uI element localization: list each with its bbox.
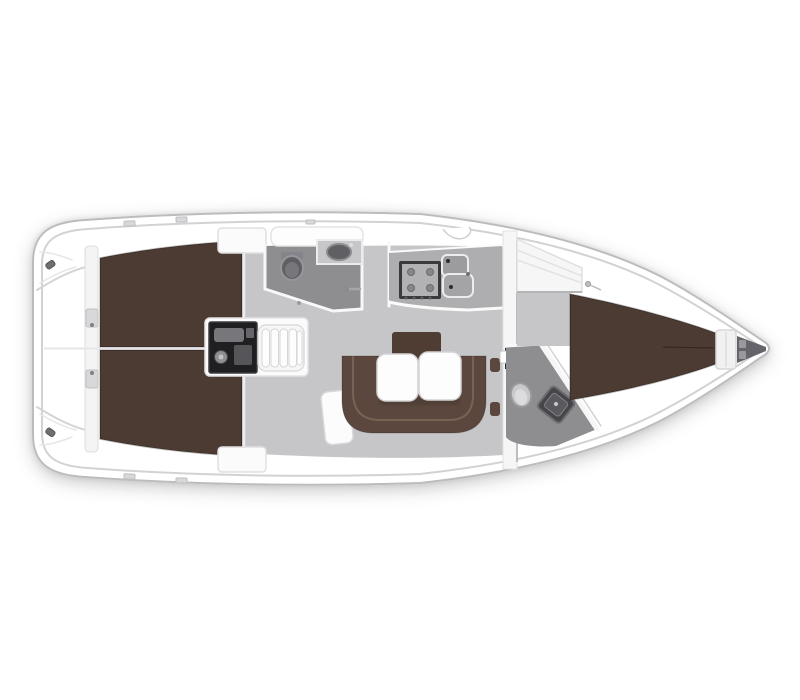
sink-upper-drain [446,259,450,263]
aft-head-faucet [349,243,353,247]
deck-plan-svg [0,0,800,700]
burner-4 [427,285,434,292]
anchor-fitting-bottom [739,351,746,359]
aft-locker-port [218,228,266,253]
engine-pulley-hub [219,355,224,360]
step-5 [297,331,302,365]
step-1 [262,329,270,367]
stove-panel [402,264,438,296]
aft-locker-starboard [218,447,266,472]
stove-knob-1 [405,297,408,300]
settee-nub-bottom [490,402,500,416]
aft-head-wall-bottom [333,309,362,311]
stove-knob-4 [429,297,432,300]
stove-knob-2 [413,297,416,300]
companionway [258,325,304,371]
aft-head-washbasin [327,244,351,260]
step-3 [280,329,288,367]
deck-fitting-4 [176,478,187,483]
step-4 [289,329,297,367]
stove-knob-3 [421,297,424,300]
galley-faucet [466,272,470,276]
engine-block [214,328,244,342]
deck-fitting-5 [306,220,315,224]
burner-1 [408,269,415,276]
steering-pin-top [90,323,94,327]
table-leaf-right [419,352,461,400]
sink-upper [442,255,468,276]
engine-filter [246,328,254,338]
deck-fitting-1 [124,221,135,227]
engine-manifold [234,345,252,365]
burner-3 [408,285,415,292]
sink-lower-drain [449,285,453,289]
steering-pin-bottom [90,371,94,375]
deck-fitting-3 [124,474,135,480]
deck-fitting-2 [176,217,187,222]
deck-latch-forward [586,282,591,287]
aft-head-door-handle [297,301,301,305]
forward-cabin-floor [517,292,570,346]
sink-lower [443,274,473,297]
settee-nub-top [490,358,500,372]
burner-2 [427,269,434,276]
step-2 [271,329,279,367]
galley [389,243,502,310]
yacht-deck-plan [0,0,800,700]
anchor-fitting-top [739,340,746,348]
shower-head [343,286,349,292]
table-leaf-left [377,354,418,401]
aft-toilet-seat [285,262,299,278]
